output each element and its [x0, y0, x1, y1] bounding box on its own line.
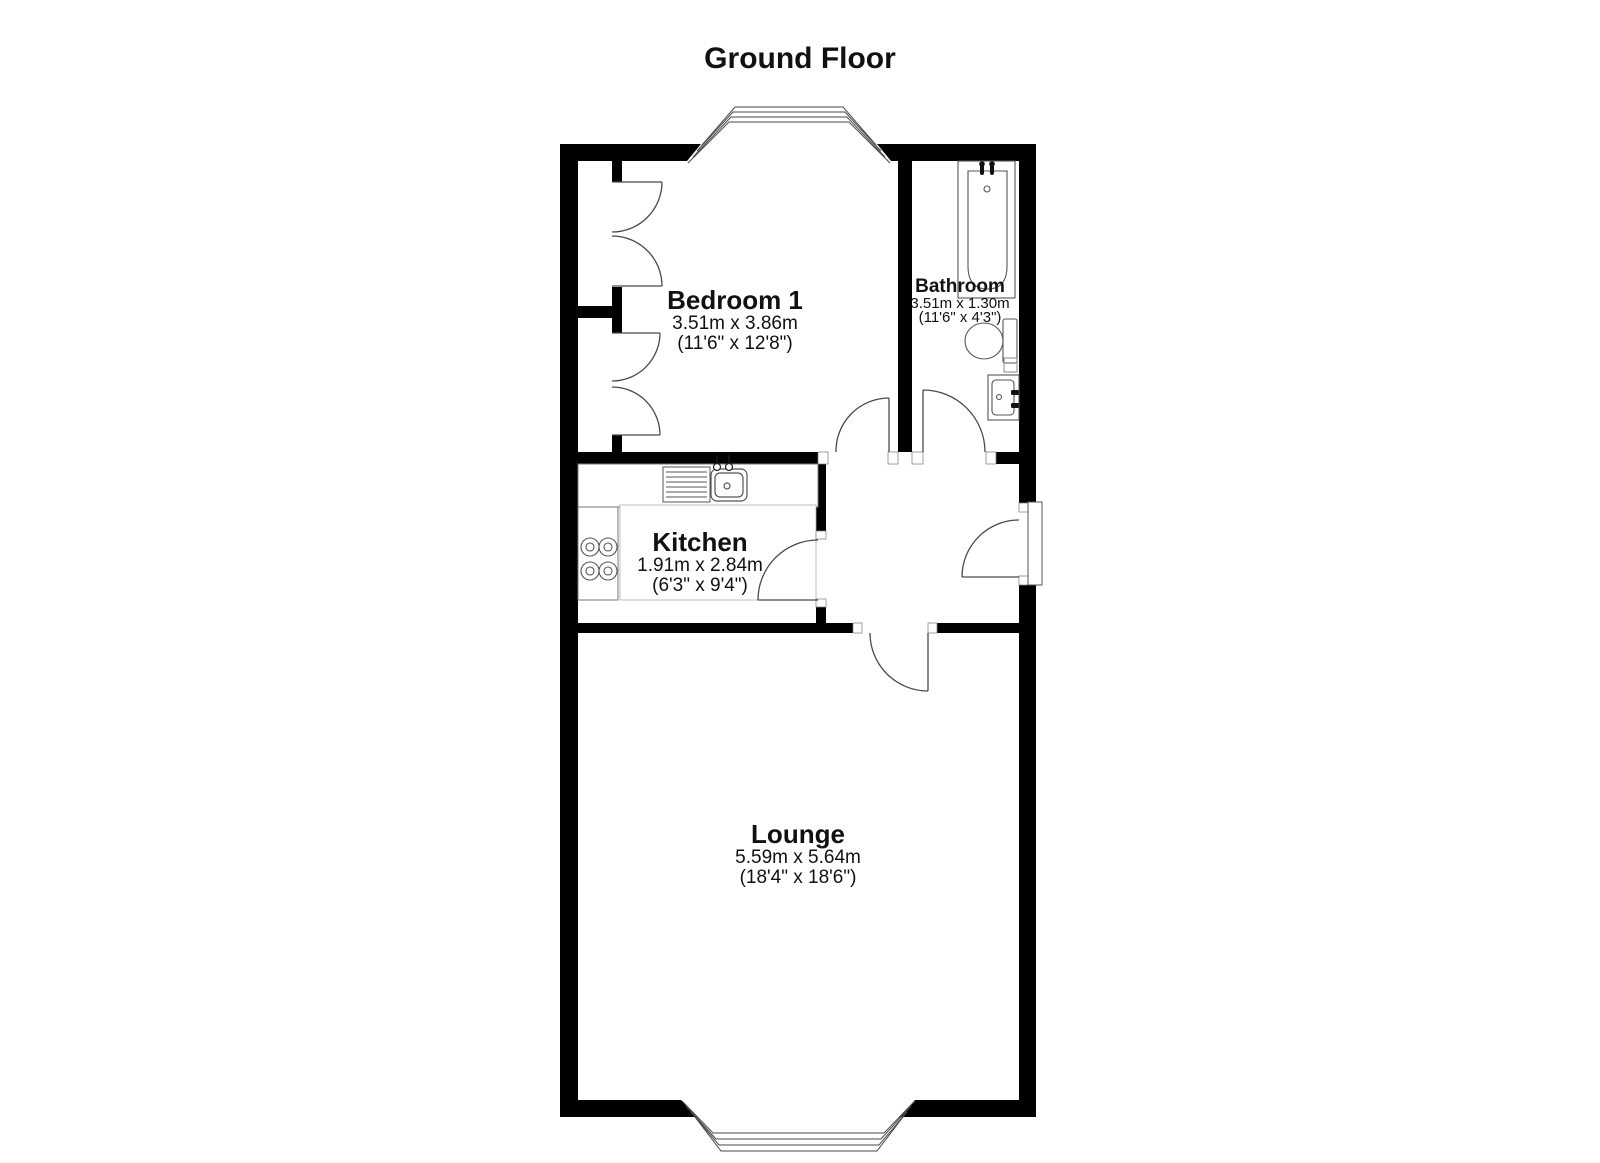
lounge-door-icon: [870, 633, 928, 691]
room-dim-imperial: (11'6" x 4'3"): [910, 311, 1009, 325]
bedroom-door-icon: [836, 398, 889, 452]
wall-right-lower: [1019, 585, 1036, 1117]
room-dim-imperial: (18'4" x 18'6"): [735, 868, 861, 888]
door-jambs: [816, 452, 1036, 633]
room-label-lounge: Lounge 5.59m x 5.64m (18'4" x 18'6"): [735, 820, 861, 888]
wall-bathroom-bottom-stub: [996, 452, 1019, 464]
room-label-bedroom1: Bedroom 1 3.51m x 3.86m (11'6" x 12'8"): [667, 286, 803, 354]
wall-bottom-left: [560, 1100, 697, 1117]
kitchen-sink-icon: [711, 469, 747, 501]
room-dim-imperial: (11'6" x 12'8"): [667, 334, 803, 354]
room-name: Lounge: [735, 820, 861, 848]
jamb: [818, 452, 828, 464]
bay-window-line: [682, 1101, 915, 1133]
bay-window-line: [693, 117, 885, 157]
wall-wardrobe-stub-top: [612, 161, 622, 182]
bay-window-top: [688, 107, 890, 163]
bathroom-door-icon: [923, 390, 985, 452]
room-name: Bathroom: [910, 276, 1009, 297]
room-dim-imperial: (6'3" x 9'4"): [637, 576, 763, 596]
bay-window-line: [691, 1112, 907, 1145]
bay-window-line: [697, 112, 881, 151]
entrance-door-panel: [1028, 502, 1042, 585]
jamb: [912, 452, 923, 464]
room-label-bathroom: Bathroom 3.51m x 1.30m (11'6" x 4'3"): [910, 276, 1009, 325]
wall-wardrobe-stub-bottom: [612, 435, 622, 452]
jamb: [816, 531, 826, 539]
drainer-icon: [663, 467, 710, 502]
wall-lounge-top-right: [937, 623, 1019, 633]
basin-icon: [988, 375, 1019, 420]
floorplan-canvas: Ground Floor Bedroom 1 3.51m x 3.86m (11…: [0, 0, 1600, 1163]
room-dim-metric: 1.91m x 2.84m: [637, 556, 763, 576]
floorplan-drawing: [0, 0, 1600, 1163]
wall-right-upper: [1019, 144, 1036, 503]
room-name: Bedroom 1: [667, 286, 803, 314]
room-label-kitchen: Kitchen 1.91m x 2.84m (6'3" x 9'4"): [637, 528, 763, 596]
room-name: Kitchen: [637, 528, 763, 556]
jamb: [853, 623, 862, 633]
entrance-door-icon: [962, 502, 1042, 585]
jamb: [928, 623, 937, 633]
wall-kitchen-stub: [816, 607, 826, 623]
bay-window-line: [695, 1117, 903, 1151]
room-dim-metric: 5.59m x 5.64m: [735, 848, 861, 868]
wall-lounge-top-left: [560, 623, 855, 633]
jamb: [986, 452, 996, 464]
bay-window-bottom: [682, 1101, 915, 1151]
jamb: [888, 452, 898, 464]
floor-title: Ground Floor: [704, 42, 896, 76]
bay-window-line: [686, 1106, 911, 1139]
bay-window-line: [702, 107, 876, 145]
wall-wardrobe-mid-horizontal: [578, 306, 622, 318]
room-dim-metric: 3.51m x 3.86m: [667, 314, 803, 334]
wall-top-right: [877, 144, 1036, 161]
wall-bottom-right: [899, 1100, 1036, 1117]
wall-top-left: [560, 144, 701, 161]
wall-bedroom-kitchen: [560, 452, 818, 464]
